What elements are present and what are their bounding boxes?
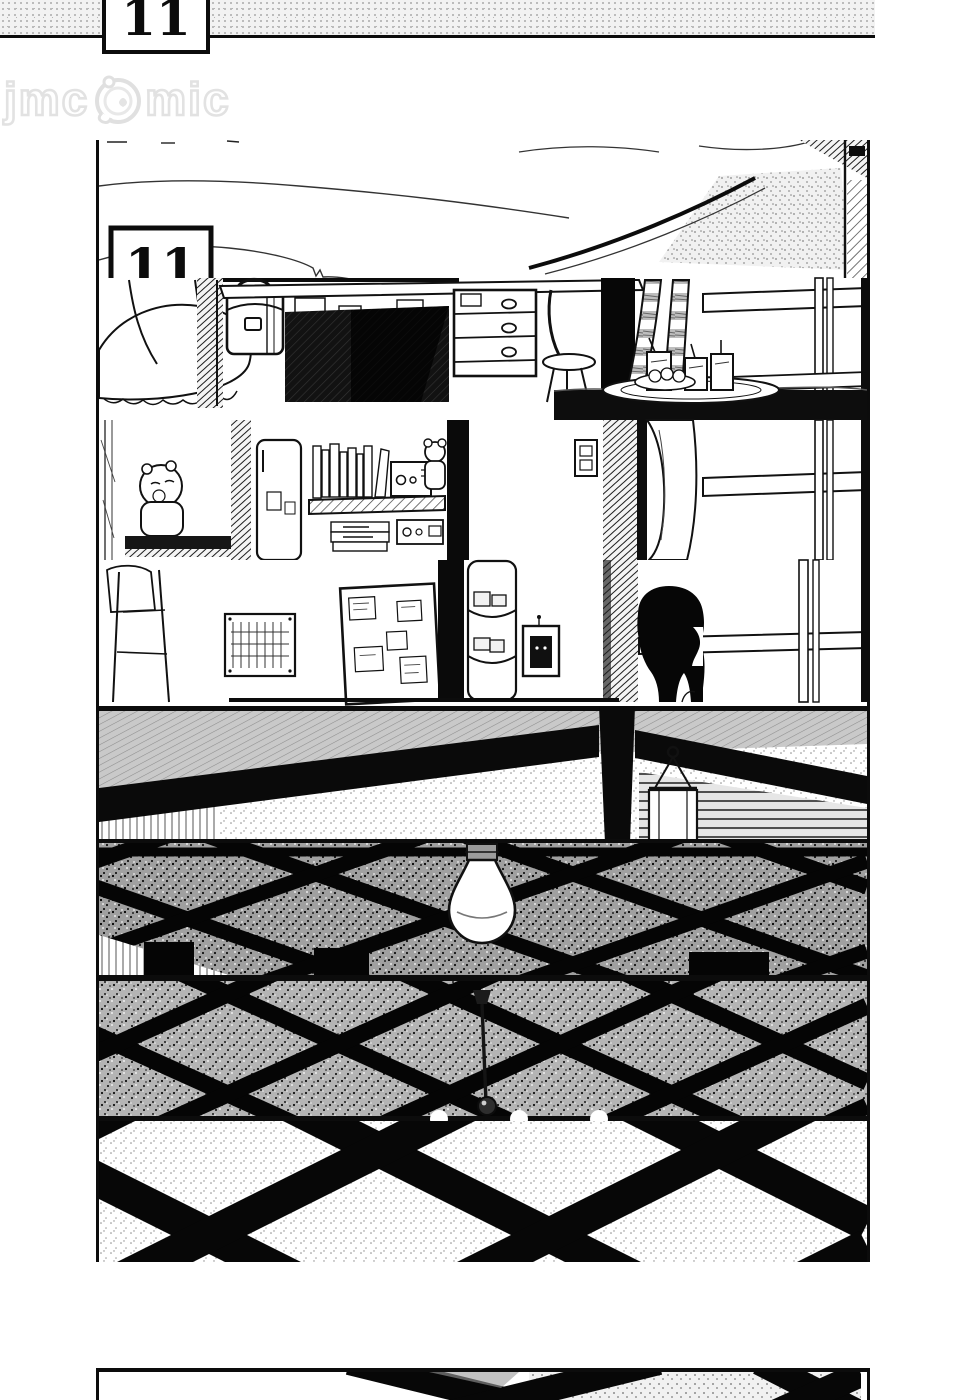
bird-mascot-icon xyxy=(89,71,145,127)
watermark-logo: jmc mic xyxy=(4,72,231,126)
watermark-text-left: jmc xyxy=(4,72,89,126)
next-page-art xyxy=(99,1372,861,1400)
next-page-top-strip xyxy=(96,1368,870,1400)
manga-page-art: 11 xyxy=(99,140,867,1262)
chapter-badge-top: 11 xyxy=(102,0,210,54)
watermark-text-right: mic xyxy=(145,72,230,126)
chapter-badge-top-label: 11 xyxy=(121,0,191,47)
comic-reader-viewport[interactable]: 11 jmc mic xyxy=(0,0,960,1400)
manga-page[interactable]: 11 xyxy=(96,140,870,1262)
panel-girl-window xyxy=(99,560,867,704)
panel-bookshelf xyxy=(99,420,867,560)
panel-ceiling-beams xyxy=(99,706,867,843)
panel-bed-top: 11 xyxy=(99,140,867,299)
panel-desk-scene xyxy=(99,278,867,420)
